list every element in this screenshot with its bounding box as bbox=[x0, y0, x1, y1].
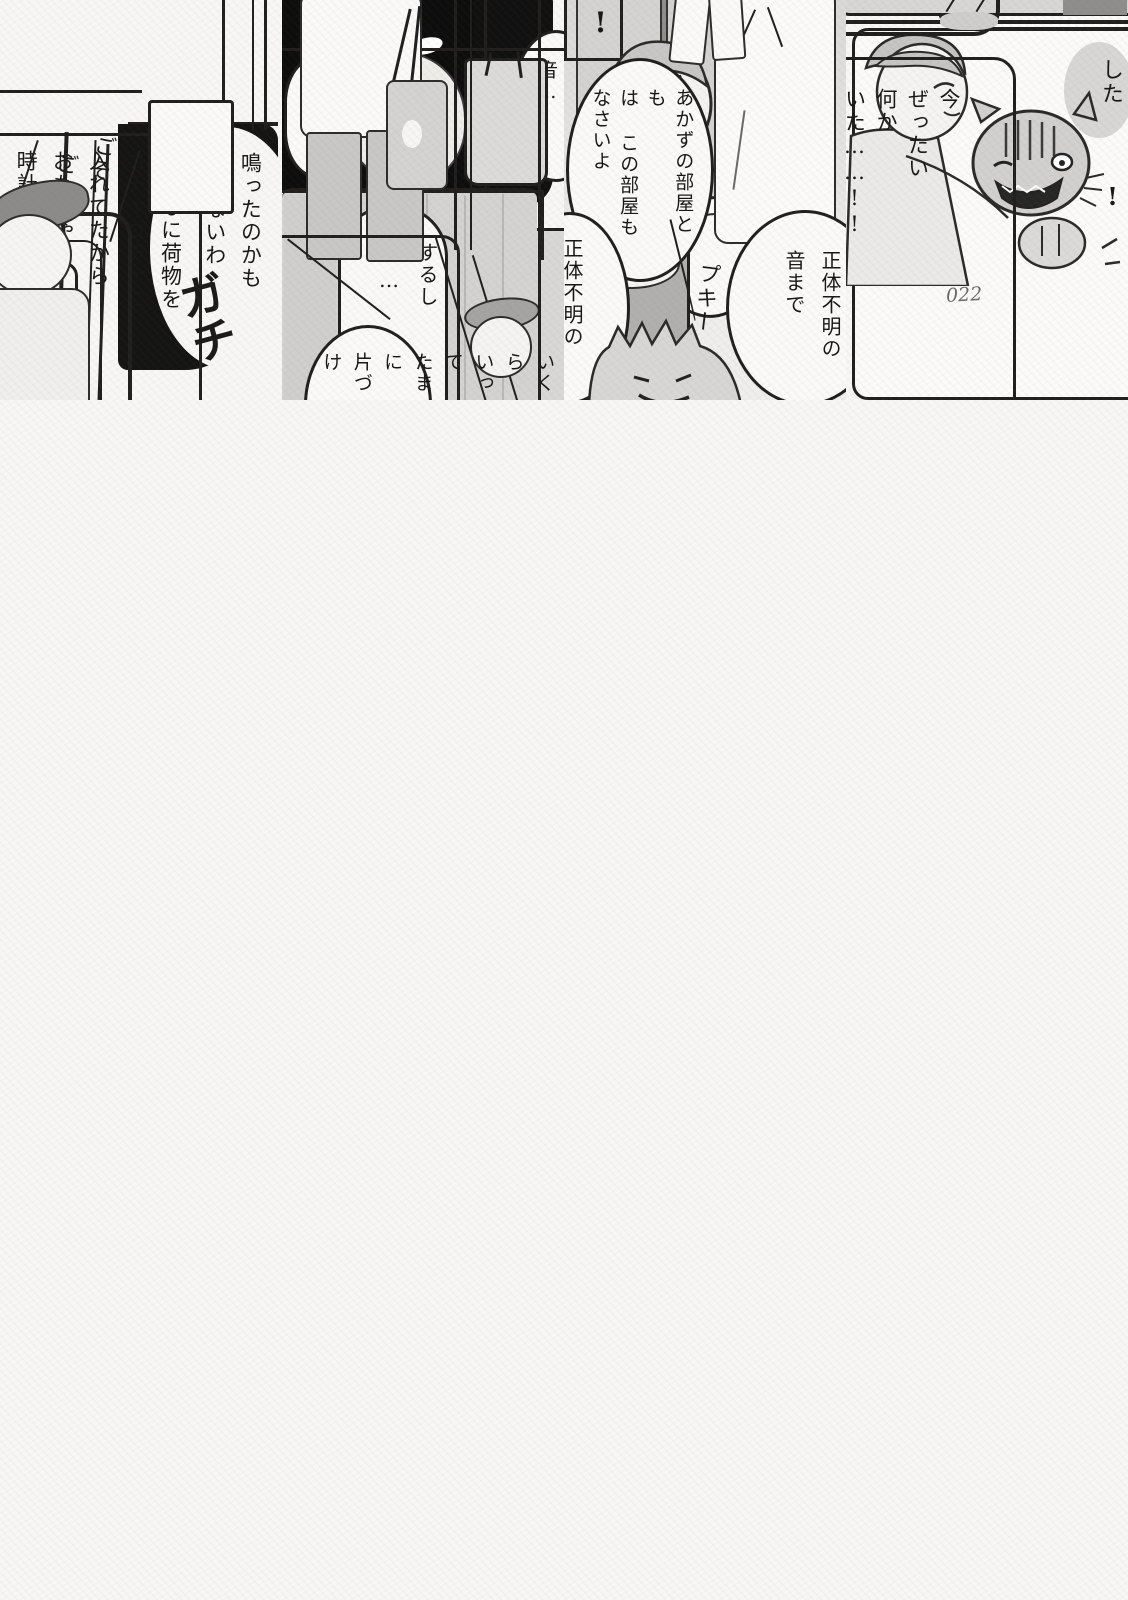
door-frame-line bbox=[470, 0, 472, 250]
beret-person-body bbox=[0, 288, 90, 400]
tile-r3-c3: 今 ぜったい 何か いた……!! 022 bbox=[846, 0, 1128, 400]
door-frame-line bbox=[98, 144, 110, 400]
hanging-bag bbox=[386, 80, 448, 190]
tile-r3-c2: あかずの部屋と も は この部屋も なさいよ 正体不明の プキー bbox=[564, 0, 846, 400]
page-number: 022 bbox=[945, 283, 982, 307]
trouser-leg-small bbox=[708, 0, 747, 61]
tile-r3-c0 bbox=[0, 0, 282, 400]
cat-growling bbox=[579, 315, 759, 400]
door-frame-line bbox=[538, 0, 541, 400]
door-frame-line bbox=[454, 0, 457, 250]
dialogue-locked-room: あかずの部屋と も は この部屋も なさいよ bbox=[586, 88, 696, 238]
dialogue-tidy-up: いくら いって たまに 片づけ bbox=[316, 352, 559, 400]
trouser-leg-small bbox=[668, 0, 712, 66]
tile-r3-c1: いくら いって たまに 片づけ bbox=[282, 0, 564, 400]
bag-highlight bbox=[402, 120, 422, 148]
dialogue-just-now: 今 ぜったい 何か いた……!! bbox=[846, 88, 964, 238]
upper-panel-art-fragment bbox=[940, 12, 998, 30]
manga-page: 鳴ったのかも しれないわ ピ ィ パタン あんなに荷物を ゴチャゴチャに 入れて… bbox=[0, 0, 1128, 1600]
